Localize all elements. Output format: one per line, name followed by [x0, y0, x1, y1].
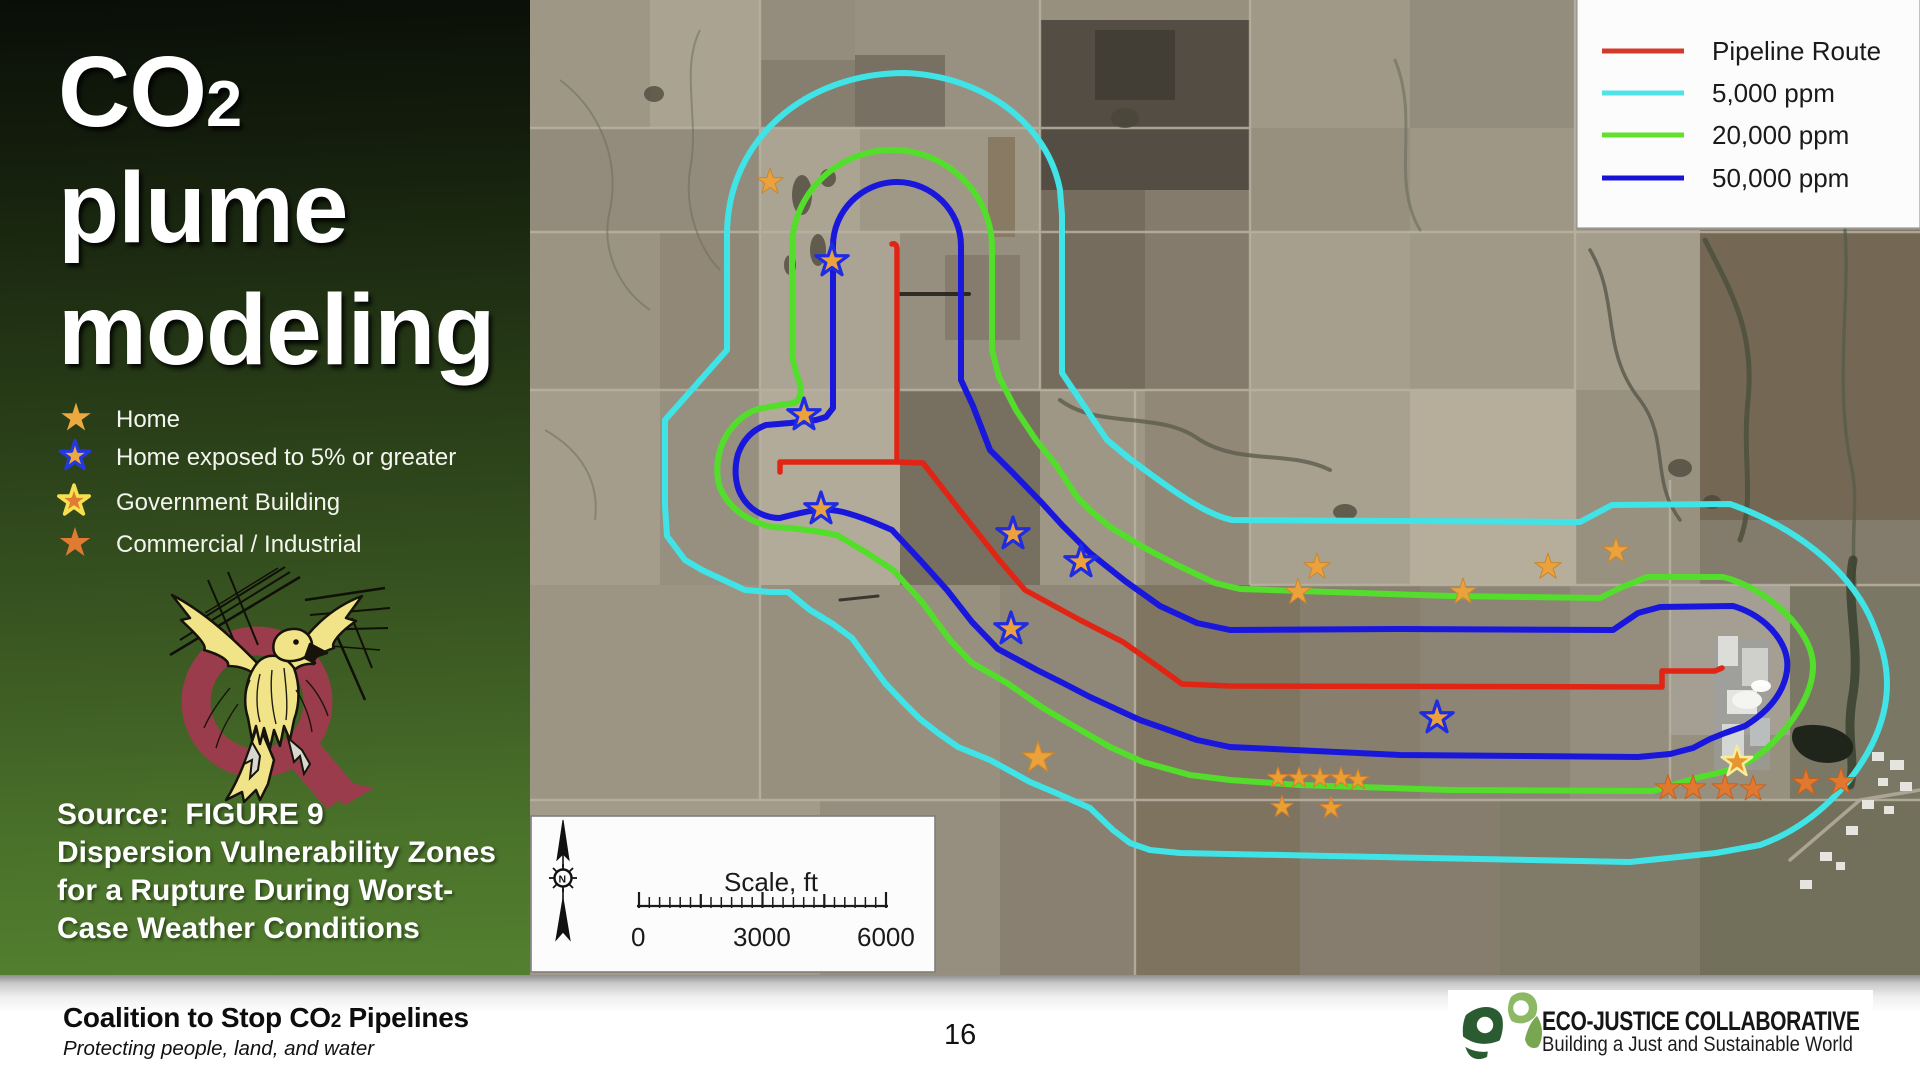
svg-text:5,000 ppm: 5,000 ppm [1712, 78, 1835, 108]
svg-text:Scale, ft: Scale, ft [724, 867, 819, 897]
svg-text:N: N [559, 874, 567, 886]
svg-text:6000: 6000 [857, 922, 915, 952]
svg-text:3000: 3000 [733, 922, 791, 952]
svg-text:20,000 ppm: 20,000 ppm [1712, 120, 1849, 150]
svg-text:50,000 ppm: 50,000 ppm [1712, 163, 1849, 193]
svg-text:0: 0 [631, 922, 645, 952]
svg-text:Pipeline Route: Pipeline Route [1712, 36, 1881, 66]
